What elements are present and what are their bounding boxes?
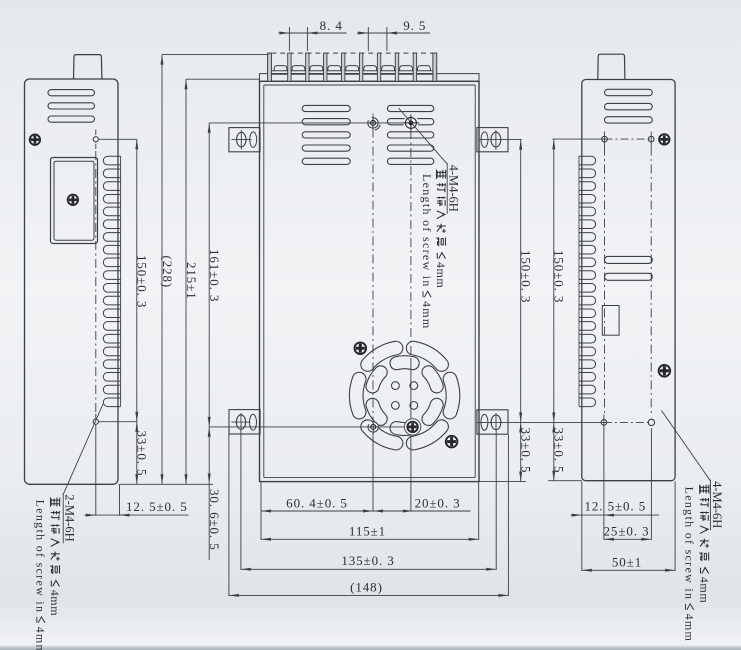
svg-text:4-M4-6H: 4-M4-6H — [710, 481, 724, 528]
svg-text:33±0. 5: 33±0. 5 — [519, 428, 534, 474]
svg-text:4mm: 4mm — [48, 590, 62, 617]
svg-text:161±0. 3: 161±0. 3 — [207, 249, 222, 302]
svg-text:30. 6±0. 5: 30. 6±0. 5 — [207, 489, 222, 551]
svg-text:150±0. 3: 150±0. 3 — [519, 250, 534, 303]
svg-text:4-M4-6H: 4-M4-6H — [447, 165, 461, 212]
svg-text:(228): (228) — [160, 256, 175, 289]
svg-text:Length of screw in: Length of screw in — [420, 174, 434, 288]
svg-text:12. 5±0. 5: 12. 5±0. 5 — [585, 498, 647, 513]
svg-text:Length of screw in: Length of screw in — [682, 487, 696, 601]
svg-text:4mm: 4mm — [682, 614, 696, 643]
svg-text:150±0. 3: 150±0. 3 — [552, 250, 567, 303]
svg-text:60. 4±0. 5: 60. 4±0. 5 — [286, 496, 348, 511]
svg-text:12. 5±0. 5: 12. 5±0. 5 — [126, 499, 188, 514]
svg-text:33±0. 5: 33±0. 5 — [135, 431, 150, 477]
svg-text:215±1: 215±1 — [184, 262, 199, 300]
svg-text:25±0. 3: 25±0. 3 — [604, 524, 650, 539]
svg-text:135±0. 3: 135±0. 3 — [341, 553, 394, 568]
svg-text:4mm: 4mm — [697, 577, 711, 604]
svg-text:8. 4: 8. 4 — [320, 18, 343, 33]
svg-text:115±1: 115±1 — [349, 523, 386, 538]
svg-text:50±1: 50±1 — [612, 555, 642, 570]
svg-text:(148): (148) — [350, 579, 383, 594]
svg-text:4mm: 4mm — [34, 627, 48, 650]
svg-text:4mm: 4mm — [434, 262, 448, 289]
svg-text:9. 5: 9. 5 — [403, 18, 426, 33]
svg-text:150±0. 3: 150±0. 3 — [135, 255, 150, 308]
svg-text:Length of screw in: Length of screw in — [34, 500, 48, 614]
svg-text:2-M4-6H: 2-M4-6H — [63, 494, 77, 541]
svg-text:20±0. 3: 20±0. 3 — [415, 496, 461, 511]
svg-text:4mm: 4mm — [420, 301, 434, 330]
svg-text:33±0. 5: 33±0. 5 — [552, 428, 567, 474]
